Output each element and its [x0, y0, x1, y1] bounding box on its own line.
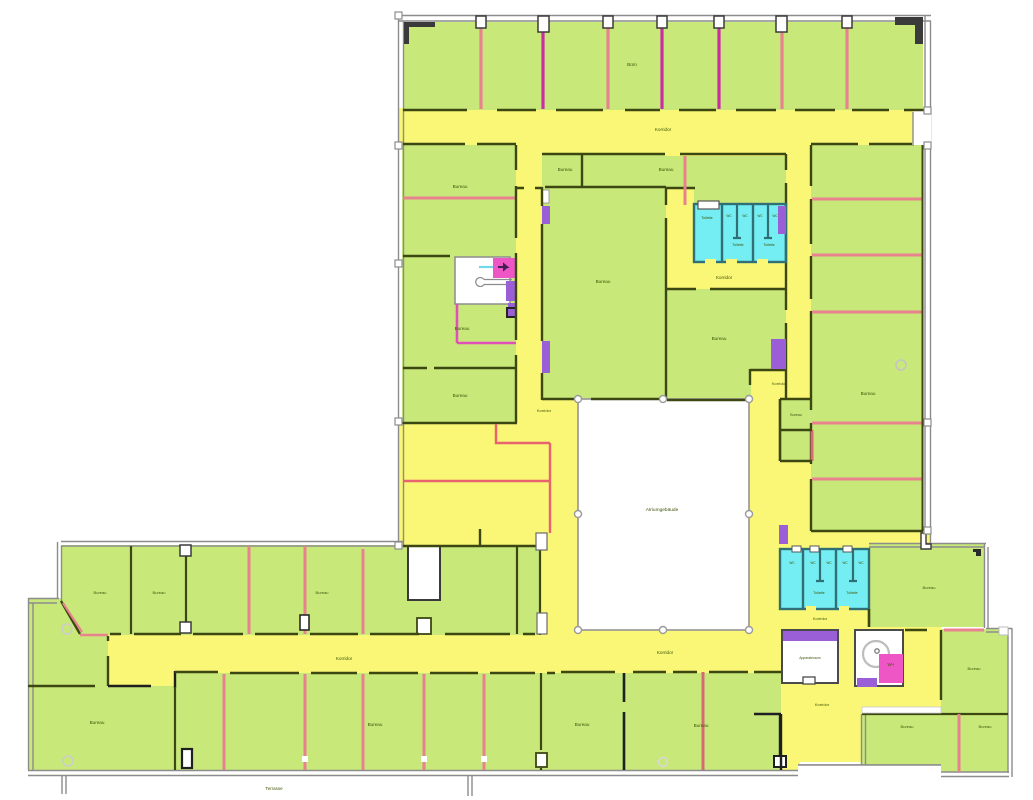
svg-text:Bureau: Bureau	[153, 590, 166, 595]
svg-text:Korridor: Korridor	[716, 275, 733, 280]
svg-text:Korridor: Korridor	[772, 381, 787, 386]
svg-text:Bureau: Bureau	[861, 391, 876, 396]
svg-text:Bureau: Bureau	[453, 393, 468, 398]
svg-text:WC: WC	[742, 214, 748, 218]
svg-text:Toilette: Toilette	[846, 591, 857, 595]
svg-text:WC: WC	[810, 561, 816, 565]
svg-text:Apparateraum: Apparateraum	[799, 656, 821, 660]
svg-text:Toilette: Toilette	[763, 243, 774, 247]
svg-text:Bureau: Bureau	[455, 326, 470, 331]
svg-text:Bureau: Bureau	[659, 167, 674, 172]
svg-text:WC: WC	[789, 561, 795, 565]
svg-text:Atriumgebäude: Atriumgebäude	[646, 507, 679, 513]
svg-text:Korridor: Korridor	[336, 656, 353, 661]
svg-text:Terrasse: Terrasse	[265, 786, 283, 791]
svg-text:Korridor: Korridor	[815, 702, 830, 707]
svg-text:Korridor: Korridor	[813, 616, 828, 621]
svg-text:Bureau: Bureau	[453, 184, 468, 189]
svg-text:Bureau: Bureau	[790, 413, 802, 417]
svg-text:WC: WC	[826, 561, 832, 565]
svg-text:Büro: Büro	[627, 62, 637, 67]
svg-text:Bureau: Bureau	[596, 279, 611, 284]
svg-text:Bureau: Bureau	[694, 723, 709, 728]
svg-text:Bureau: Bureau	[901, 724, 914, 729]
svg-text:WC: WC	[842, 561, 848, 565]
svg-text:Toilette: Toilette	[701, 216, 712, 220]
svg-text:Bureau: Bureau	[712, 336, 727, 341]
svg-text:Toilette: Toilette	[813, 591, 824, 595]
svg-text:Bureau: Bureau	[575, 722, 590, 727]
svg-text:Bureau: Bureau	[558, 167, 573, 172]
svg-text:Toilette: Toilette	[732, 243, 743, 247]
svg-text:Bureau: Bureau	[316, 590, 329, 595]
svg-text:WC: WC	[726, 214, 732, 218]
svg-text:Bureau: Bureau	[968, 666, 981, 671]
svg-text:WC: WC	[858, 561, 864, 565]
svg-text:Korridor: Korridor	[657, 650, 674, 655]
svg-text:Bureau: Bureau	[368, 722, 383, 727]
svg-text:Bureau: Bureau	[923, 585, 936, 590]
svg-text:Bureau: Bureau	[979, 724, 992, 729]
svg-text:Korridor: Korridor	[537, 408, 552, 413]
svg-text:W+: W+	[888, 662, 895, 667]
svg-text:Korridor: Korridor	[655, 127, 672, 132]
svg-text:WC: WC	[757, 214, 763, 218]
svg-text:Bureau: Bureau	[94, 590, 107, 595]
svg-text:Bureau: Bureau	[90, 720, 105, 725]
svg-text:WC: WC	[772, 214, 778, 218]
